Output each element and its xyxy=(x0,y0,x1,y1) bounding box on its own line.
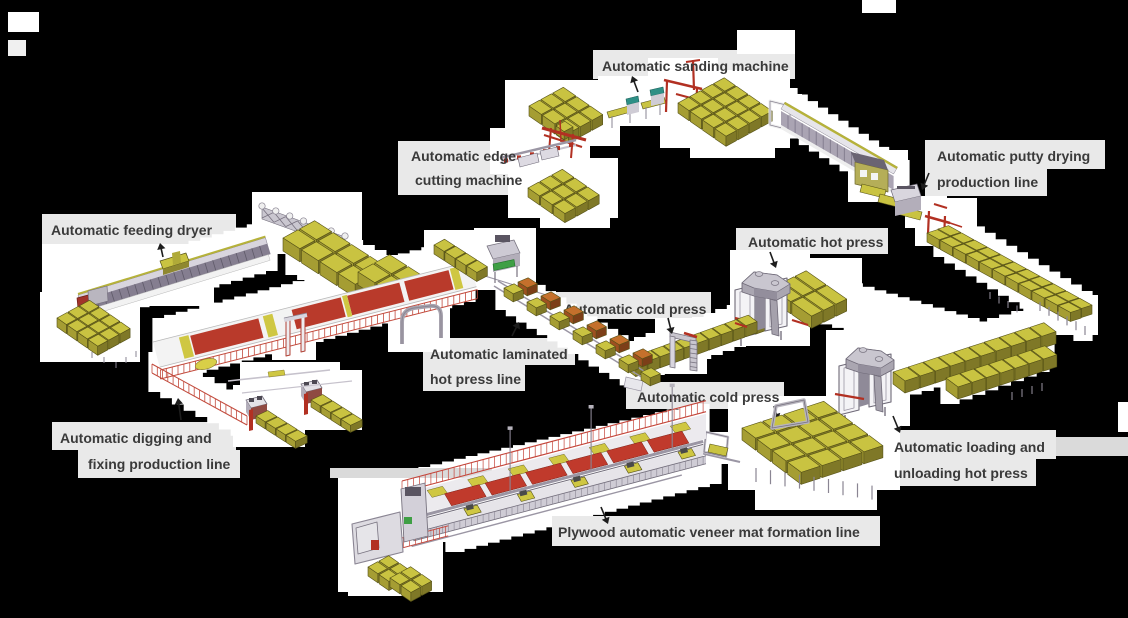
svg-text:Automatic cold press: Automatic cold press xyxy=(637,389,780,405)
svg-text:production line: production line xyxy=(937,174,1038,190)
svg-text:fixing production line: fixing production line xyxy=(88,456,231,472)
svg-text:Automatic loading and: Automatic loading and xyxy=(894,439,1045,455)
svg-text:Automatic digging and: Automatic digging and xyxy=(60,430,212,446)
svg-text:Automatic hot press: Automatic hot press xyxy=(748,234,884,250)
svg-text:Automatic edge: Automatic edge xyxy=(411,148,516,164)
svg-text:Automatic putty drying: Automatic putty drying xyxy=(937,148,1090,164)
svg-text:Plywood automatic veneer mat f: Plywood automatic veneer mat formation l… xyxy=(558,524,860,540)
svg-text:hot press line: hot press line xyxy=(430,371,521,387)
svg-text:cutting machine: cutting machine xyxy=(415,172,523,188)
svg-text:Automatic sanding machine: Automatic sanding machine xyxy=(602,58,789,74)
svg-text:Automatic cold press: Automatic cold press xyxy=(564,301,707,317)
svg-text:Automatic feeding dryer: Automatic feeding dryer xyxy=(51,222,213,238)
svg-text:Automatic laminated: Automatic laminated xyxy=(430,346,568,362)
svg-text:unloading hot press: unloading hot press xyxy=(894,465,1028,481)
